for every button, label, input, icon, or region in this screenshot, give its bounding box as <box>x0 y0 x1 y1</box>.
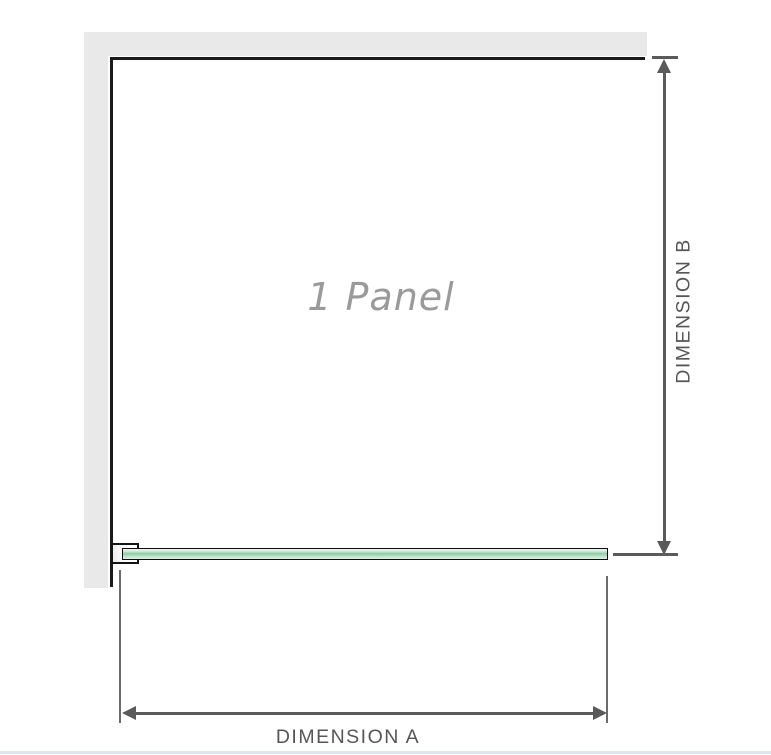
dimension-a-line <box>135 712 594 715</box>
dimension-b-arrowhead-bottom-icon <box>657 541 671 555</box>
wall-top <box>84 32 647 56</box>
wall-left <box>84 32 108 588</box>
dimension-a-arrowhead-left-icon <box>122 706 136 720</box>
dimension-b-label: DIMENSION B <box>673 238 696 383</box>
panel-count-label: 1 Panel <box>307 275 454 319</box>
dimension-b-line <box>663 72 666 542</box>
dimension-a-extension-line-right <box>606 576 608 723</box>
dimension-b-arrowhead-top-icon <box>657 59 671 73</box>
dimension-a-arrowhead-right-icon <box>593 706 607 720</box>
wall-face-line-top <box>110 57 645 60</box>
glass-panel <box>122 548 608 560</box>
page-bottom-divider <box>0 751 771 754</box>
wall-face-line-left <box>110 57 113 587</box>
dimension-a-extension-line-left <box>119 570 121 723</box>
dimension-a-label: DIMENSION A <box>276 726 420 749</box>
shower-screen-dimension-diagram: 1 Panel DIMENSION B DIMENSION A <box>0 0 771 755</box>
